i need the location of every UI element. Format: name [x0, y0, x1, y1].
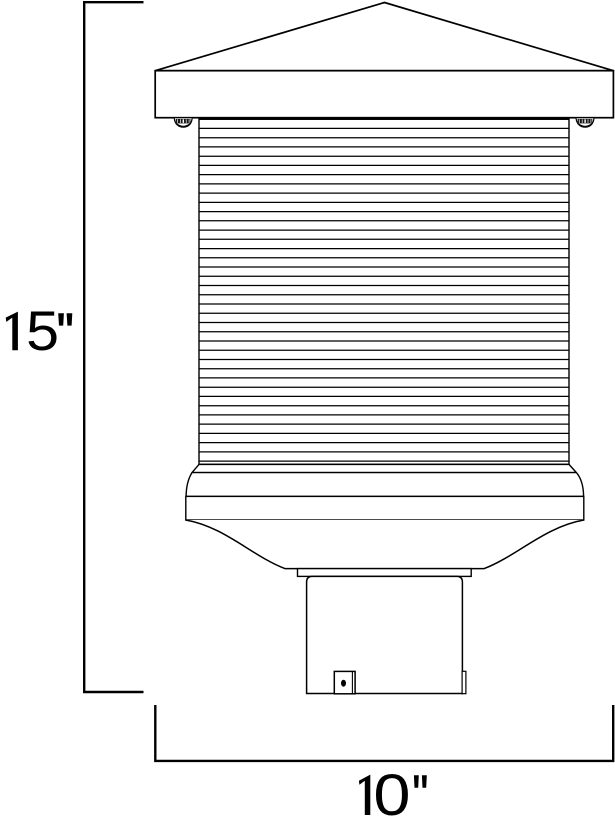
svg-text:5: 5 [26, 300, 59, 362]
svg-text:0: 0 [373, 763, 410, 825]
